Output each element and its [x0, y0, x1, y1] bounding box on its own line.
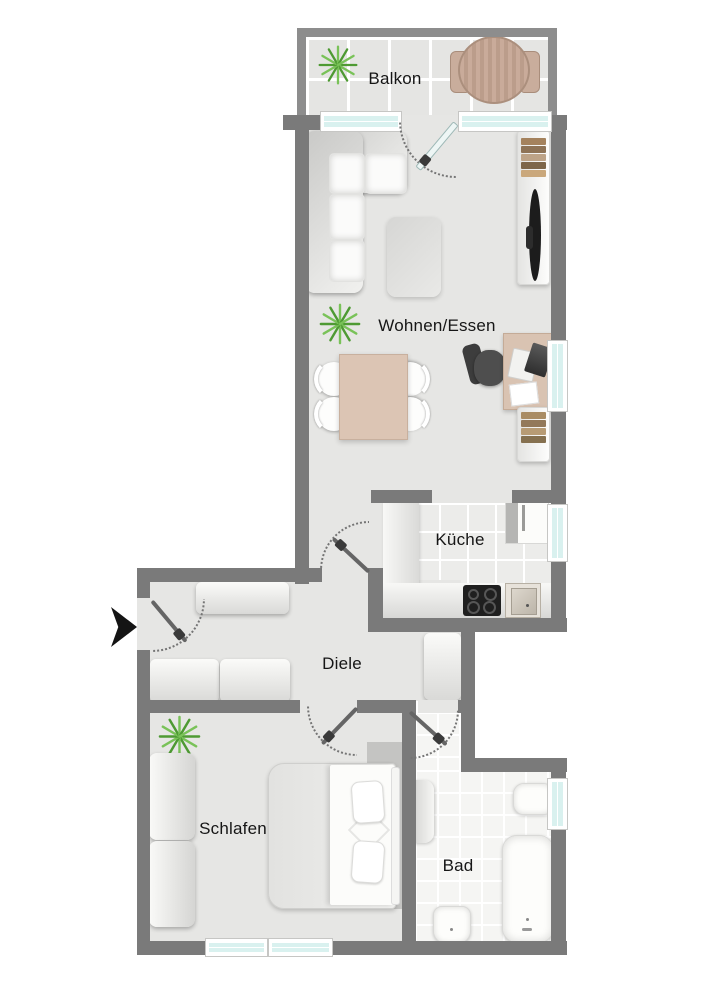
room-label-schlafen: Schlafen: [199, 819, 267, 839]
door-swing-arc: [99, 546, 205, 652]
bed-headboard: [391, 767, 400, 905]
room-label-kueche: Küche: [435, 530, 484, 550]
window: [547, 504, 568, 562]
window: [458, 111, 552, 132]
window: [205, 938, 268, 957]
balcony-wall-right: [548, 28, 557, 118]
room-label-wohnen: Wohnen/Essen: [378, 316, 495, 336]
sink: [505, 583, 541, 618]
room-label-bad: Bad: [443, 856, 474, 876]
desk-paper: [509, 381, 539, 406]
books: [521, 412, 546, 443]
tv-stand: [526, 226, 533, 249]
plant-icon: [316, 43, 360, 87]
room-label-diele: Diele: [322, 654, 362, 674]
hall-cabinet-top: [196, 582, 289, 614]
books: [521, 138, 546, 177]
wall: [371, 490, 432, 503]
wall: [137, 582, 150, 598]
window: [547, 340, 568, 412]
sofa-cushion: [329, 240, 365, 282]
room-label-balkon: Balkon: [368, 69, 421, 89]
sofa-cushion: [365, 153, 407, 194]
bathtub: [502, 835, 554, 943]
wall: [357, 700, 403, 713]
wohnen-diele-opening: [322, 568, 368, 582]
pillow: [351, 780, 386, 824]
cooktop: [463, 585, 501, 616]
coffee-table: [387, 217, 441, 297]
fridge: [505, 500, 549, 544]
kitchen-entry-opening: [432, 490, 512, 503]
entrance-arrow-icon: [111, 607, 137, 647]
hall-cabinet-bottom-right: [220, 659, 290, 702]
floor-plan: Balkon Wohnen/Essen Küche Diele Schlafen…: [0, 0, 707, 1000]
balcony-wall-top: [297, 28, 557, 37]
plant-icon: [317, 301, 363, 347]
hall-cabinet-corridor: [424, 633, 461, 700]
pillow: [351, 840, 386, 884]
wall: [461, 632, 475, 772]
balcony-wall-left: [297, 28, 306, 118]
office-chair: [474, 350, 506, 386]
sofa-cushion: [329, 153, 365, 194]
window: [320, 111, 402, 132]
wardrobe: [149, 841, 195, 927]
wall: [371, 618, 567, 632]
wall: [137, 568, 320, 582]
wall: [137, 941, 567, 955]
wall: [512, 490, 551, 503]
wall: [137, 700, 300, 713]
bed: [268, 763, 398, 907]
hall-cabinet-bottom-left: [150, 659, 219, 702]
window: [268, 938, 333, 957]
dining-table: [339, 354, 408, 440]
wall: [295, 130, 309, 584]
sofa-cushion: [329, 194, 365, 240]
wall: [461, 758, 567, 772]
toilet: [433, 906, 471, 944]
entrance-opening: [137, 598, 150, 650]
wardrobe: [149, 753, 195, 840]
balcony-table: [458, 36, 530, 104]
wall: [137, 650, 150, 955]
window: [547, 778, 568, 830]
